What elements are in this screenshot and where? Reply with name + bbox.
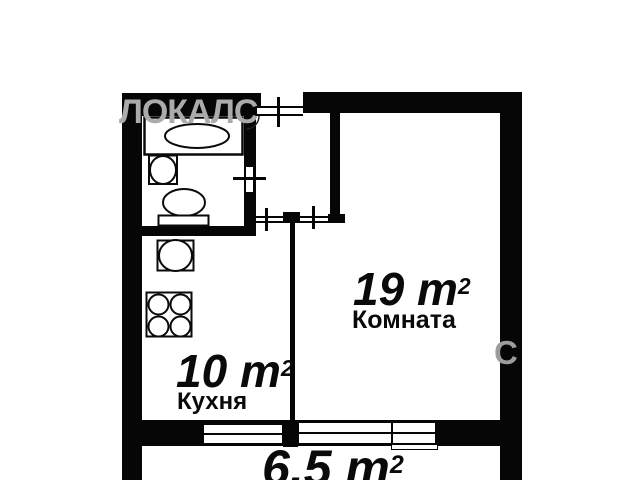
balcony-area-value: 6.5 m — [262, 440, 390, 480]
kitchen-name-label: Кухня — [177, 390, 247, 414]
toilet-icon — [159, 189, 209, 226]
balcony-area-sup: 2 — [390, 451, 404, 479]
kitchen-area-sup: 2 — [281, 355, 294, 381]
fixtures-layer — [0, 0, 631, 480]
washbasin-icon — [149, 156, 177, 185]
stove-burners-icon — [147, 293, 192, 337]
floor-plan: ЛОКАЛС С 19 m2 Комната 10 m2 Кухня 6.5 m… — [0, 0, 631, 480]
living-room-name-label: Комната — [352, 308, 456, 333]
kitchen-sink-icon — [158, 240, 194, 271]
balcony-area-label: 6.5 m2 — [262, 443, 404, 480]
watermark-letter: С — [494, 336, 518, 369]
watermark-logo: ЛОКАЛС — [119, 95, 257, 129]
living-room-area-sup: 2 — [458, 273, 471, 299]
